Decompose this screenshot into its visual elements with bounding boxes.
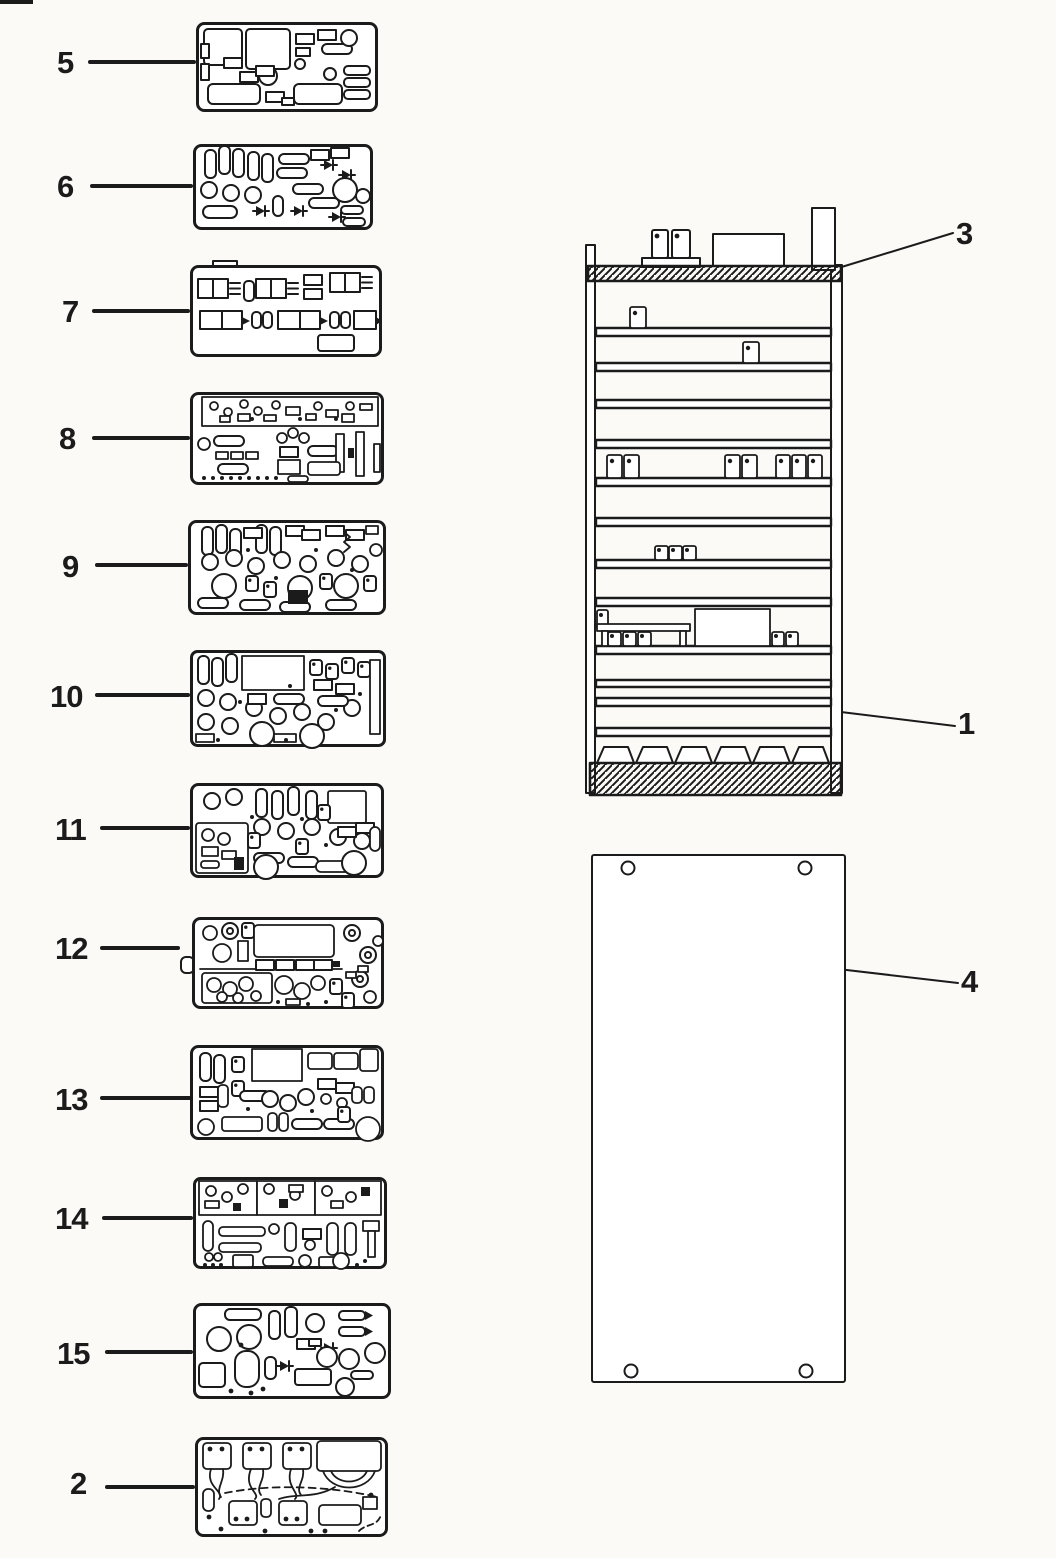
callout-label-13: 13 bbox=[55, 1084, 87, 1115]
leader-line-4 bbox=[838, 969, 958, 983]
leader-line-2 bbox=[105, 1485, 195, 1489]
callout-label-9: 9 bbox=[62, 551, 78, 582]
circuit-board-15 bbox=[193, 1303, 391, 1399]
leader-line-13 bbox=[100, 1096, 192, 1100]
circuit-board-5 bbox=[196, 22, 378, 112]
callout-label-15: 15 bbox=[57, 1338, 89, 1369]
top-module-box bbox=[713, 234, 784, 266]
exploded-parts-diagram-page: 5 6 7 8 9 10 11 12 13 14 15 2 3 1 4 bbox=[0, 0, 1056, 1558]
callout-label-8: 8 bbox=[59, 423, 75, 454]
callout-label-3: 3 bbox=[956, 218, 972, 249]
top-mounting-plate-part-3 bbox=[588, 266, 841, 281]
callout-label-2: 2 bbox=[70, 1468, 86, 1499]
chassis-shelf-components bbox=[597, 307, 822, 646]
top-tall-post bbox=[812, 208, 835, 270]
leader-line-1 bbox=[841, 712, 955, 726]
bottom-base-plate bbox=[590, 763, 841, 795]
circuit-board-8 bbox=[190, 392, 384, 485]
circuit-board-7 bbox=[190, 265, 382, 357]
scan-corner-mark bbox=[0, 0, 33, 4]
callout-label-4: 4 bbox=[961, 966, 977, 997]
cover-panel-part-4 bbox=[590, 852, 850, 1386]
shelf-module-box bbox=[695, 609, 770, 646]
leader-line-8 bbox=[92, 436, 190, 440]
circuit-board-9 bbox=[188, 520, 386, 615]
leader-line-11 bbox=[100, 826, 190, 830]
cover-panel-face bbox=[592, 855, 845, 1382]
callout-label-6: 6 bbox=[57, 171, 73, 202]
leader-line-9 bbox=[95, 563, 188, 567]
chassis-feet bbox=[597, 747, 829, 763]
leader-line-14 bbox=[102, 1216, 193, 1220]
callout-label-14: 14 bbox=[55, 1203, 87, 1234]
circuit-board-10 bbox=[190, 650, 386, 747]
leader-line-6 bbox=[90, 184, 193, 188]
chassis-shelves bbox=[596, 328, 831, 736]
chassis-right-rail bbox=[831, 265, 842, 793]
leader-line-3 bbox=[835, 233, 953, 269]
callout-label-7: 7 bbox=[62, 296, 78, 327]
leader-line-12 bbox=[100, 946, 180, 950]
callout-label-1: 1 bbox=[958, 708, 974, 739]
circuit-board-11 bbox=[190, 783, 384, 878]
leader-line-5 bbox=[88, 60, 196, 64]
leader-line-10 bbox=[95, 693, 190, 697]
chassis-assembly bbox=[584, 205, 850, 797]
callout-label-12: 12 bbox=[55, 933, 87, 964]
circuit-board-2 bbox=[195, 1437, 388, 1537]
callout-label-11: 11 bbox=[55, 814, 86, 845]
leader-line-7 bbox=[92, 309, 190, 313]
callout-label-10: 10 bbox=[50, 681, 82, 712]
circuit-board-12 bbox=[192, 917, 384, 1009]
leader-line-15 bbox=[105, 1350, 193, 1354]
chassis-top-components bbox=[642, 208, 835, 270]
circuit-board-14 bbox=[193, 1177, 387, 1269]
leader-line-overlay bbox=[0, 0, 1056, 1558]
circuit-board-6 bbox=[193, 144, 373, 230]
callout-label-5: 5 bbox=[57, 47, 73, 78]
circuit-board-13 bbox=[190, 1045, 384, 1140]
chassis-left-rail bbox=[586, 245, 595, 793]
